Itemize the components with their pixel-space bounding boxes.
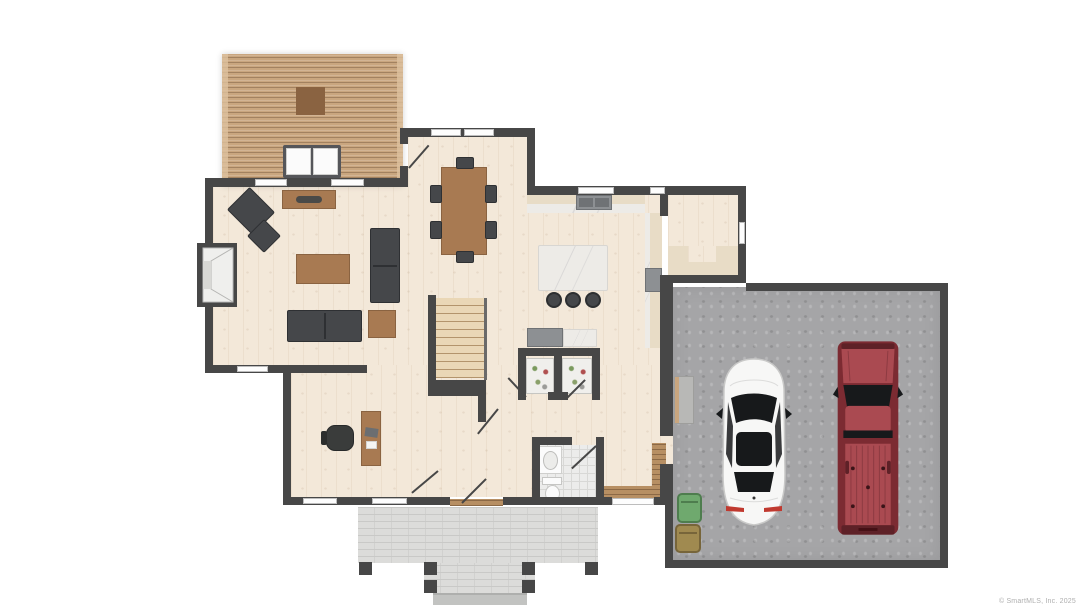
wall (660, 194, 668, 216)
window (237, 366, 268, 372)
desk-papers (366, 441, 377, 449)
dining-table (441, 167, 487, 255)
porch-post (522, 580, 535, 593)
kitchen-sink (576, 195, 612, 210)
garage-step (674, 376, 694, 424)
porch-post (424, 580, 437, 593)
watermark: © SmartMLS, Inc. 2025 (999, 598, 1076, 605)
dining-chair (485, 221, 497, 239)
closet-wall (592, 348, 600, 400)
garage-wall (940, 283, 948, 568)
window (650, 187, 665, 194)
counter-segment (563, 329, 597, 347)
stair-stringer (484, 298, 487, 380)
bar-stool (565, 292, 581, 308)
deck-trim-left (222, 54, 228, 186)
window (255, 179, 287, 186)
sofa-right (370, 228, 400, 303)
coffee-table (296, 254, 350, 284)
sofa-cushion-line (373, 265, 397, 267)
bin-lid-line (679, 532, 697, 534)
wall (400, 166, 408, 187)
mudroom-counter-notch (688, 246, 716, 262)
porch-lower-tier (424, 563, 535, 593)
dining-chair (485, 185, 497, 203)
deck-table (296, 87, 325, 115)
window (739, 222, 745, 244)
closet-wall (518, 348, 600, 356)
console-table (282, 190, 336, 209)
stair-wall (428, 295, 436, 380)
window (578, 187, 614, 194)
entry-threshold (450, 499, 503, 506)
wall (283, 365, 291, 505)
bathroom-wall (532, 437, 572, 445)
bathroom-wall (532, 437, 540, 505)
office-chair (326, 425, 354, 451)
vanity-sink (538, 446, 562, 474)
wall (660, 283, 673, 436)
red-pickup-truck (832, 338, 904, 540)
porch-post (585, 562, 598, 575)
stair-landing-wall (428, 380, 486, 396)
pantry-shelving (526, 358, 554, 394)
laptop (364, 427, 378, 438)
dining-chair (456, 157, 474, 169)
toilet-tank (542, 477, 562, 485)
kitchen-island (538, 245, 608, 291)
porch-post (424, 562, 437, 575)
console-decor (296, 196, 322, 203)
desk (361, 411, 381, 466)
wall (205, 178, 408, 187)
side-table (368, 310, 396, 338)
window (331, 179, 364, 186)
front-porch (358, 507, 598, 563)
wall (654, 497, 668, 505)
window (303, 498, 337, 504)
garage-wall (665, 497, 673, 564)
porch-steps (433, 593, 527, 605)
garage-step-edge (675, 377, 679, 423)
sink-oval (543, 451, 558, 470)
lounger-cushion (286, 148, 311, 175)
sink-basin (595, 198, 609, 207)
bin-lid-line (681, 501, 698, 503)
sofa-bottom (287, 310, 362, 342)
sink-basin (579, 198, 593, 207)
garage-wall (665, 560, 948, 568)
wall (660, 275, 746, 283)
trash-bin-brown (675, 524, 701, 553)
porch-post (359, 562, 372, 575)
staircase (436, 298, 484, 378)
wall (527, 128, 535, 190)
wall (527, 186, 746, 195)
wall (660, 464, 673, 497)
porch-post (522, 562, 535, 575)
outdoor-double-lounger (283, 145, 341, 178)
bar-stool (546, 292, 562, 308)
watermark-text: © SmartMLS, Inc. 2025 (999, 598, 1076, 605)
wall (291, 365, 367, 373)
fireplace (197, 243, 237, 307)
lounger-cushion (313, 148, 338, 175)
dining-chair (430, 185, 442, 203)
bar-stool (585, 292, 601, 308)
wall (478, 396, 486, 422)
window (612, 498, 654, 505)
white-car (716, 356, 792, 534)
trash-bin-green (677, 493, 702, 523)
dining-chair (430, 221, 442, 239)
window (431, 129, 461, 136)
range-cooktop (527, 328, 563, 347)
bathroom-wall (596, 437, 604, 505)
window (372, 498, 407, 504)
sofa-cushion-line (324, 313, 326, 339)
window (464, 129, 494, 136)
floor-plan: © SmartMLS, Inc. 2025 (0, 0, 1080, 608)
garage-wall (746, 283, 948, 291)
chair-back (321, 431, 327, 445)
dining-chair (456, 251, 474, 263)
